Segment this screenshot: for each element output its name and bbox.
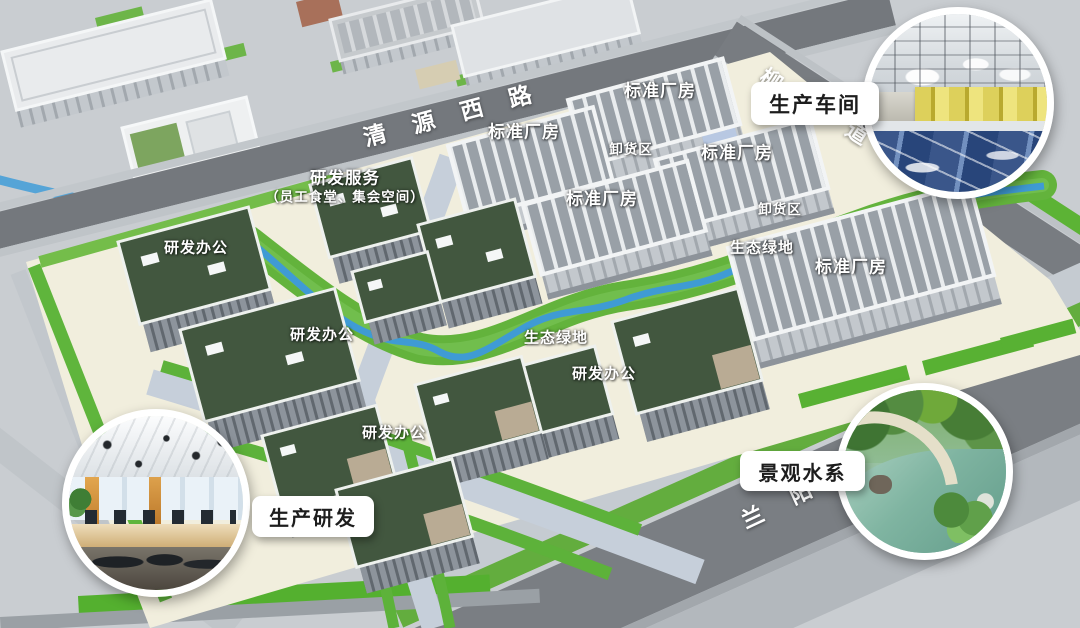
label-rd-office-4: 研发办公 <box>362 422 426 443</box>
masterplan-rendering: 清 源 西 路 柳 道 兰 阳 标准厂房 标准厂房 标准厂房 标准厂房 标准厂房… <box>0 0 1080 628</box>
label-factory-5: 标准厂房 <box>815 253 887 278</box>
label-rd-service-line2: （员工食堂、集会空间） <box>265 189 425 206</box>
callout-production-workshop-label: 生产车间 <box>769 89 861 119</box>
callout-landscape-water: 景观水系 <box>740 451 865 491</box>
label-rd-office-1: 研发办公 <box>164 237 228 258</box>
label-factory-1: 标准厂房 <box>488 118 560 143</box>
callout-production-rd-label: 生产研发 <box>269 502 357 531</box>
label-rd-office-2: 研发办公 <box>290 324 354 345</box>
photo-office-ceiling <box>69 416 243 480</box>
road-char: 西 <box>456 88 487 127</box>
label-factory-3: 标准厂房 <box>701 139 773 164</box>
label-unloading-2: 卸货区 <box>758 198 802 218</box>
photo-water-bush <box>931 488 999 543</box>
label-factory-4: 标准厂房 <box>566 185 638 210</box>
callout-production-workshop: 生产车间 <box>751 82 879 125</box>
callout-production-rd: 生产研发 <box>252 496 374 537</box>
production-rd-photo <box>62 409 250 597</box>
label-rd-office-3: 研发办公 <box>572 363 636 384</box>
label-rd-service-line1: 研发服务 <box>265 168 425 189</box>
label-eco-green-1: 生态绿地 <box>524 327 588 348</box>
photo-water-rock <box>869 475 892 495</box>
callout-landscape-water-label: 景观水系 <box>759 457 847 486</box>
road-char: 源 <box>407 101 438 140</box>
photo-factory-ceiling <box>869 14 1047 98</box>
label-eco-green-2: 生态绿地 <box>730 237 794 258</box>
production-workshop-photo <box>862 7 1054 199</box>
label-rd-service: 研发服务 （员工食堂、集会空间） <box>265 168 425 206</box>
label-unloading-1: 卸货区 <box>609 138 653 158</box>
photo-office-floor-chairs <box>69 547 243 591</box>
label-factory-2: 标准厂房 <box>624 77 696 102</box>
photo-factory-solar-panels <box>869 131 1047 192</box>
